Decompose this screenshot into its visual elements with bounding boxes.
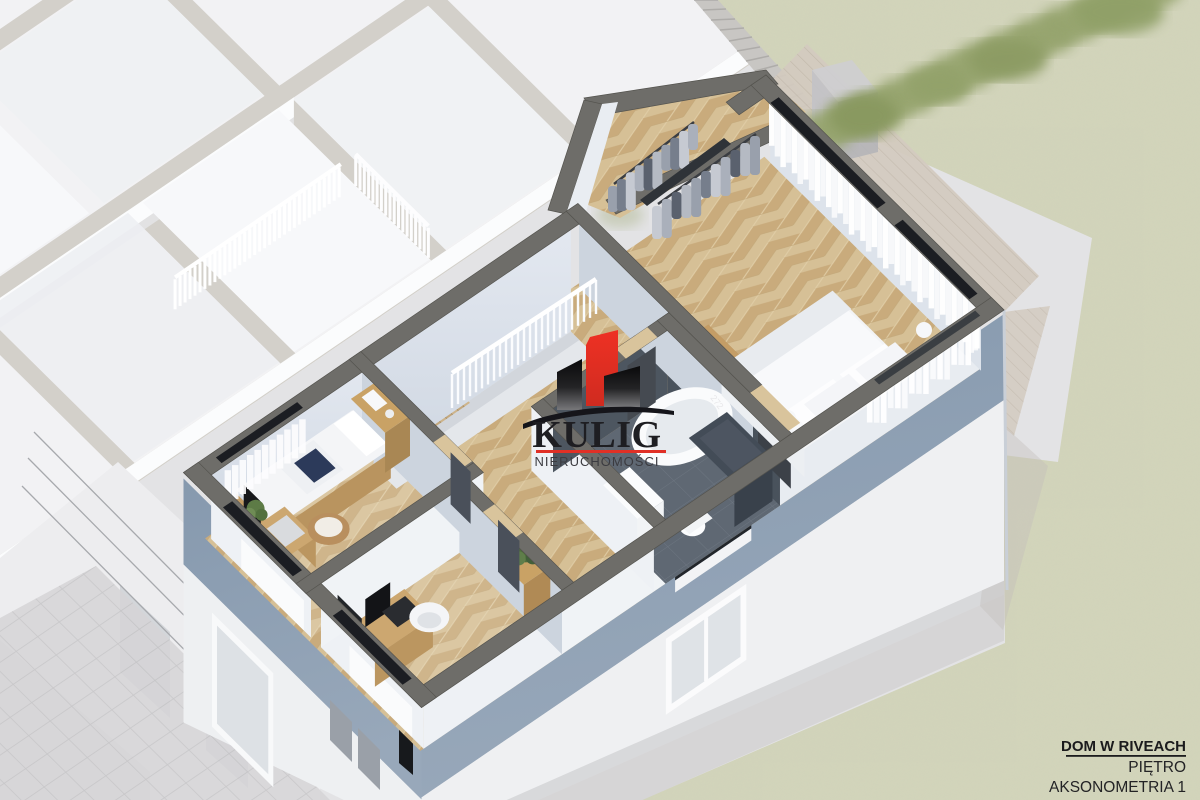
svg-text:NIERUCHOMOŚCI: NIERUCHOMOŚCI (535, 454, 660, 469)
svg-text:AKSONOMETRIA 1: AKSONOMETRIA 1 (1049, 779, 1186, 796)
svg-text:KULIG: KULIG (532, 414, 661, 456)
svg-text:PIĘTRO: PIĘTRO (1128, 759, 1186, 776)
svg-text:DOM W RIVEACH: DOM W RIVEACH (1061, 738, 1186, 755)
